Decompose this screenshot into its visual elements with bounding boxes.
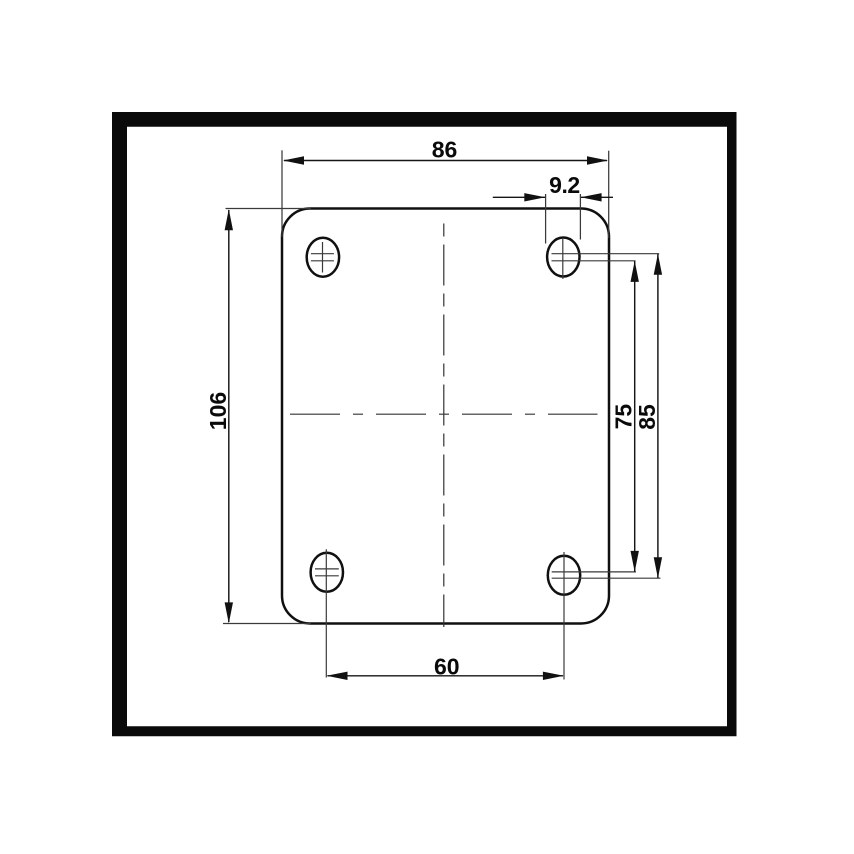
svg-text:86: 86 [432,137,458,163]
svg-text:75: 75 [611,404,637,430]
svg-text:9.2: 9.2 [549,172,579,198]
svg-text:60: 60 [434,654,460,680]
svg-text:85: 85 [634,404,660,430]
svg-text:106: 106 [205,392,231,430]
